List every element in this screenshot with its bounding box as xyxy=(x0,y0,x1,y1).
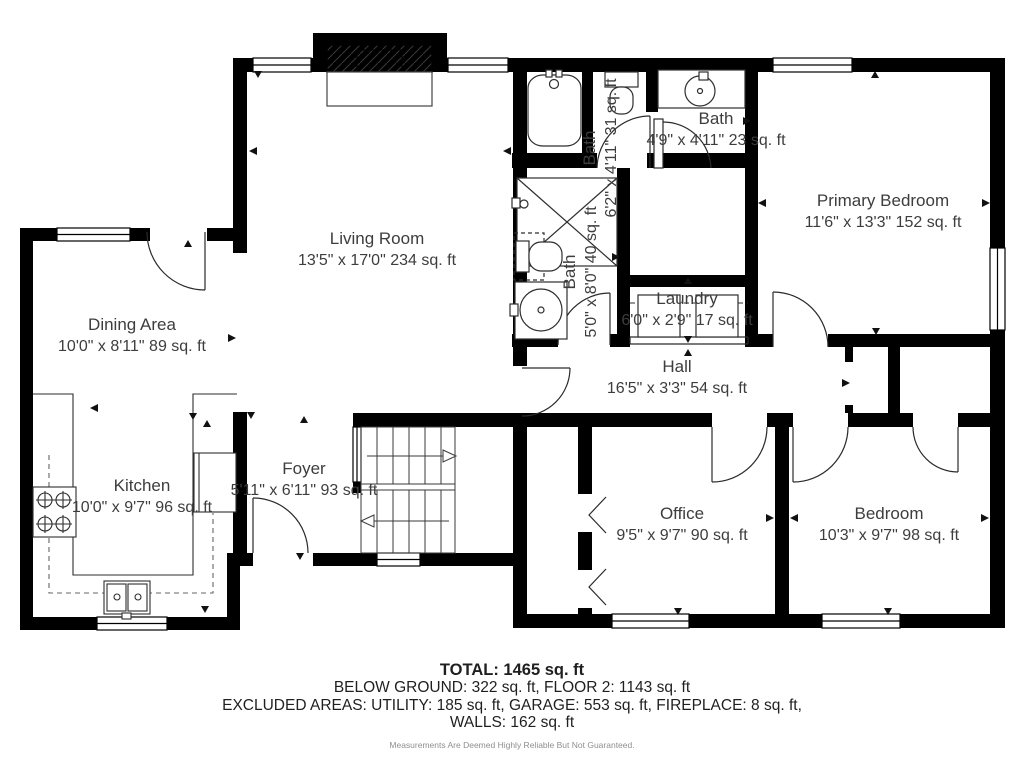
vanity-sink-right-bath xyxy=(658,70,745,108)
floor-plan-page: Living Room 13'5" x 17'0" 234 sq. ft Din… xyxy=(0,0,1024,768)
kitchen-sink xyxy=(104,581,150,619)
room-label-bedroom: Bedroom 10'3" x 9'7" 98 sq. ft xyxy=(819,503,959,547)
room-label-bath-right: Bath 4'9" x 4'11" 23 sq. ft xyxy=(646,108,785,152)
excluded-areas: EXCLUDED AREAS: UTILITY: 185 sq. ft, GAR… xyxy=(0,697,1024,715)
door-front-entry xyxy=(253,498,308,553)
window xyxy=(990,248,1005,330)
door-bedroom xyxy=(793,427,848,482)
stove xyxy=(33,487,76,537)
window xyxy=(377,553,420,566)
stairs-up-arrow xyxy=(367,450,456,462)
fireplace xyxy=(313,33,447,106)
window xyxy=(822,614,900,628)
door-primary-bedroom xyxy=(773,292,828,347)
disclaimer: Measurements Are Deemed Highly Reliable … xyxy=(0,740,1024,750)
below-ground-area: BELOW GROUND: 322 sq. ft, FLOOR 2: 1143 … xyxy=(0,679,1024,697)
room-label-living-room: Living Room 13'5" x 17'0" 234 sq. ft xyxy=(298,228,456,272)
stairs-down-arrow xyxy=(361,515,449,527)
room-label-hall: Hall 16'5" x 3'3" 54 sq. ft xyxy=(607,356,747,400)
window xyxy=(97,617,167,630)
room-label-primary-bedroom: Primary Bedroom 11'6" x 13'3" 152 sq. ft xyxy=(805,190,962,234)
room-label-dining-area: Dining Area 10'0" x 8'11" 89 sq. ft xyxy=(58,314,206,358)
door-office xyxy=(712,427,767,482)
room-label-bath-upper: Bath 6'2" x 4'11" 31 sq. ft xyxy=(579,78,623,217)
window xyxy=(612,614,689,628)
room-label-bath-lower: Bath 5'0" x 8'0" 40 sq. ft xyxy=(559,206,603,337)
area-summary: TOTAL: 1465 sq. ft BELOW GROUND: 322 sq.… xyxy=(0,661,1024,750)
floor-plan-canvas xyxy=(0,0,1024,768)
room-label-office: Office 9'5" x 9'7" 90 sq. ft xyxy=(616,503,747,547)
window xyxy=(253,58,311,72)
total-area: TOTAL: 1465 sq. ft xyxy=(0,661,1024,679)
door-hall-entry xyxy=(522,368,570,416)
bathtub xyxy=(528,70,581,146)
room-label-laundry: Laundry 6'0" x 2'9" 17 sq. ft xyxy=(621,288,752,332)
walls-area: WALLS: 162 sq. ft xyxy=(0,714,1024,732)
window xyxy=(773,58,852,72)
door-bedroom-closet xyxy=(913,427,958,472)
room-label-kitchen: Kitchen 10'0" x 9'7" 96 sq. ft xyxy=(72,475,212,519)
window xyxy=(57,228,130,241)
hearth xyxy=(327,72,432,106)
room-label-foyer: Foyer 5'11" x 6'11" 93 sq. ft xyxy=(231,458,378,502)
door-dining xyxy=(147,232,205,290)
window xyxy=(448,58,508,72)
